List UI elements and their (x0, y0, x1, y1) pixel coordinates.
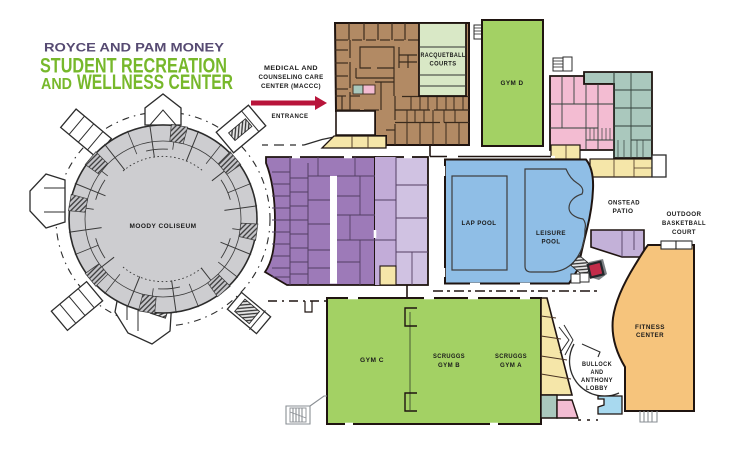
svg-text:GYM B: GYM B (438, 362, 460, 369)
svg-text:BULLOCK: BULLOCK (582, 361, 612, 368)
svg-text:MOODY COLISEUM: MOODY COLISEUM (130, 223, 197, 230)
svg-text:COUNSELING CARE: COUNSELING CARE (259, 74, 324, 81)
svg-text:ENTRANCE: ENTRANCE (272, 113, 309, 120)
svg-text:MEDICAL AND: MEDICAL AND (264, 65, 318, 72)
svg-text:COURT: COURT (672, 229, 696, 236)
svg-text:RACQUETBALL: RACQUETBALL (421, 52, 466, 59)
svg-text:BASKETBALL: BASKETBALL (662, 220, 706, 227)
svg-text:OUTDOOR: OUTDOOR (667, 211, 702, 218)
svg-text:LEISURE: LEISURE (536, 230, 566, 237)
svg-text:WELLNESS CENTER: WELLNESS CENTER (77, 70, 233, 94)
svg-text:GYM C: GYM C (360, 357, 384, 364)
svg-text:ANTHONY: ANTHONY (581, 377, 613, 384)
svg-text:CENTER: CENTER (636, 332, 664, 339)
svg-text:ROYCE AND PAM MONEY: ROYCE AND PAM MONEY (44, 41, 224, 55)
svg-text:LOBBY: LOBBY (586, 385, 608, 392)
svg-text:GYM A: GYM A (500, 362, 522, 369)
svg-text:COURTS: COURTS (430, 61, 457, 68)
svg-text:LAP POOL: LAP POOL (462, 220, 497, 227)
svg-text:ONSTEAD: ONSTEAD (608, 200, 640, 207)
svg-text:CENTER (MACCC): CENTER (MACCC) (261, 83, 321, 90)
svg-text:POOL: POOL (542, 239, 561, 246)
svg-text:AND: AND (41, 76, 72, 93)
svg-text:PATIO: PATIO (613, 208, 634, 215)
svg-text:GYM D: GYM D (501, 80, 524, 87)
svg-text:SCRUGGS: SCRUGGS (495, 353, 527, 360)
svg-text:FITNESS: FITNESS (635, 324, 665, 331)
svg-text:AND: AND (591, 369, 604, 376)
svg-text:SCRUGGS: SCRUGGS (433, 353, 465, 360)
